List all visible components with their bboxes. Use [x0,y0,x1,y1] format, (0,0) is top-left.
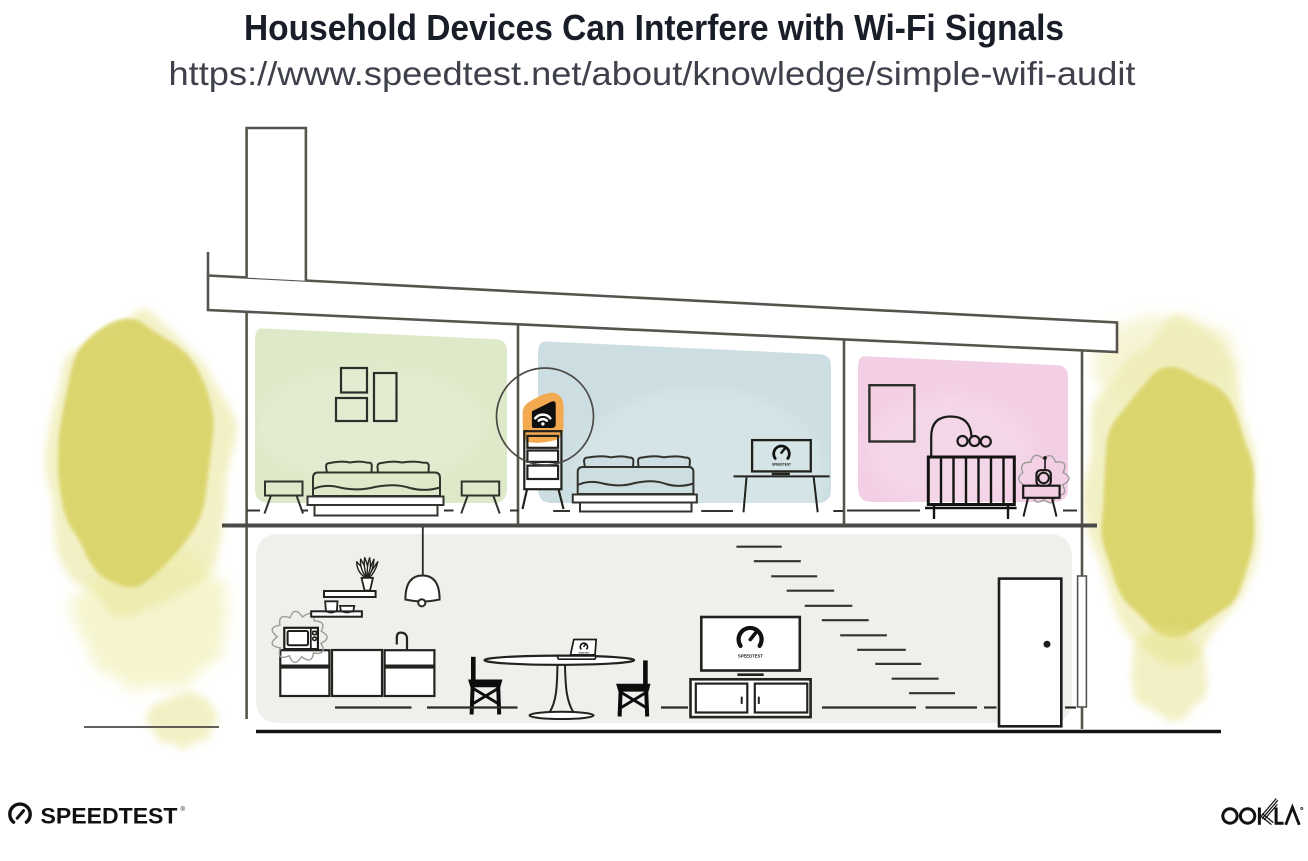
svg-text:https://www.speedtest.net/abou: https://www.speedtest.net/about/knowledg… [169,55,1136,92]
svg-text:Household Devices Can Interfer: Household Devices Can Interfere with Wi-… [244,7,1064,48]
svg-text:SPEEDTEST: SPEEDTEST [772,462,791,466]
svg-text:SPEEDTEST: SPEEDTEST [579,652,591,654]
svg-text:SPEEDTEST: SPEEDTEST [41,804,178,829]
svg-text:®: ® [181,806,186,813]
svg-text:SPEEDTEST: SPEEDTEST [738,654,763,659]
